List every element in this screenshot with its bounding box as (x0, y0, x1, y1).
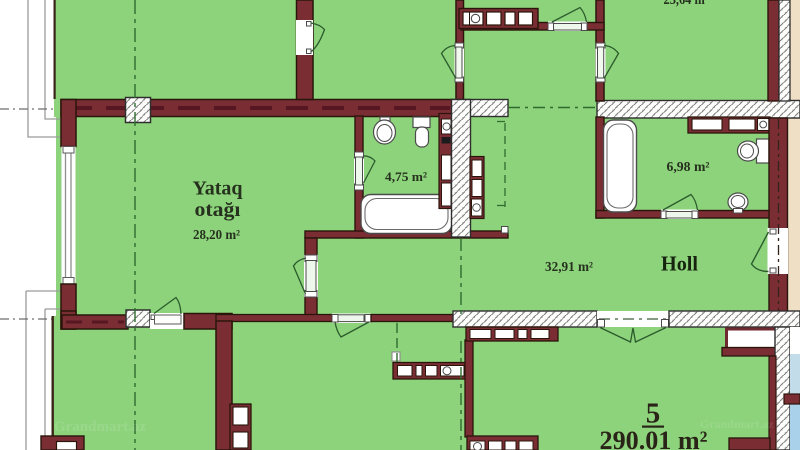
svg-text:290.01 m²: 290.01 m² (600, 426, 708, 450)
svg-text:4,75 m²: 4,75 m² (385, 169, 427, 184)
svg-text:6,98 m²: 6,98 m² (667, 159, 710, 174)
svg-text:Grandmart.az: Grandmart.az (54, 419, 146, 435)
svg-text:otağı: otağı (195, 199, 241, 221)
svg-text:32,91 m²: 32,91 m² (545, 259, 593, 274)
svg-text:Holl: Holl (661, 252, 698, 276)
svg-text:23,64 m²: 23,64 m² (664, 0, 709, 8)
svg-text:Yataq: Yataq (193, 178, 244, 200)
svg-text:5: 5 (646, 398, 661, 430)
svg-text:Grandmart.az: Grandmart.az (700, 417, 774, 431)
svg-text:28,20 m²: 28,20 m² (193, 227, 240, 242)
